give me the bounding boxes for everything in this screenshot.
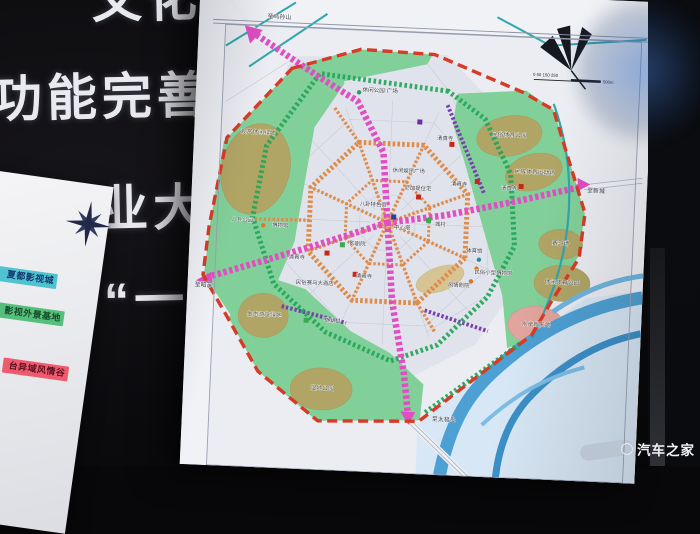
map-marker [324,250,329,255]
scale-unit: 500m [603,79,614,84]
map-marker [340,242,345,247]
legend-item: 夏都影视城 [0,265,58,289]
watermark: 汽车之家 [621,439,695,459]
map-marker [391,214,396,219]
reflection-streak [650,248,665,466]
map-marker [519,184,524,189]
map-marker [417,119,422,124]
autohome-logo-icon [621,443,633,455]
watermark-text: 汽车之家 [637,439,695,459]
legend-item: 影视外景基地 [0,302,65,326]
map-marker [475,179,480,184]
planning-map-poster: 0 50 150 250 500m 规划图 至乌孙山休闲公园·广场观赏休闲绿地民… [180,0,656,484]
photo-stage: 文化优 功能完善、 化产业大发 位为“一核 [0,0,700,466]
map-marker [303,318,308,323]
legend-item: 台异域风情谷 [2,358,69,382]
photo-dark-edge [648,0,700,466]
map-marker [449,142,454,147]
compass-rose-icon [61,197,115,251]
planning-map-svg: 0 50 150 250 500m 规划图 至乌孙山休闲公园·广场观赏休闲绿地民… [180,0,656,484]
scale-ticks: 0 50 150 250 [533,72,559,78]
map-marker [416,194,421,199]
map-marker [426,218,431,223]
